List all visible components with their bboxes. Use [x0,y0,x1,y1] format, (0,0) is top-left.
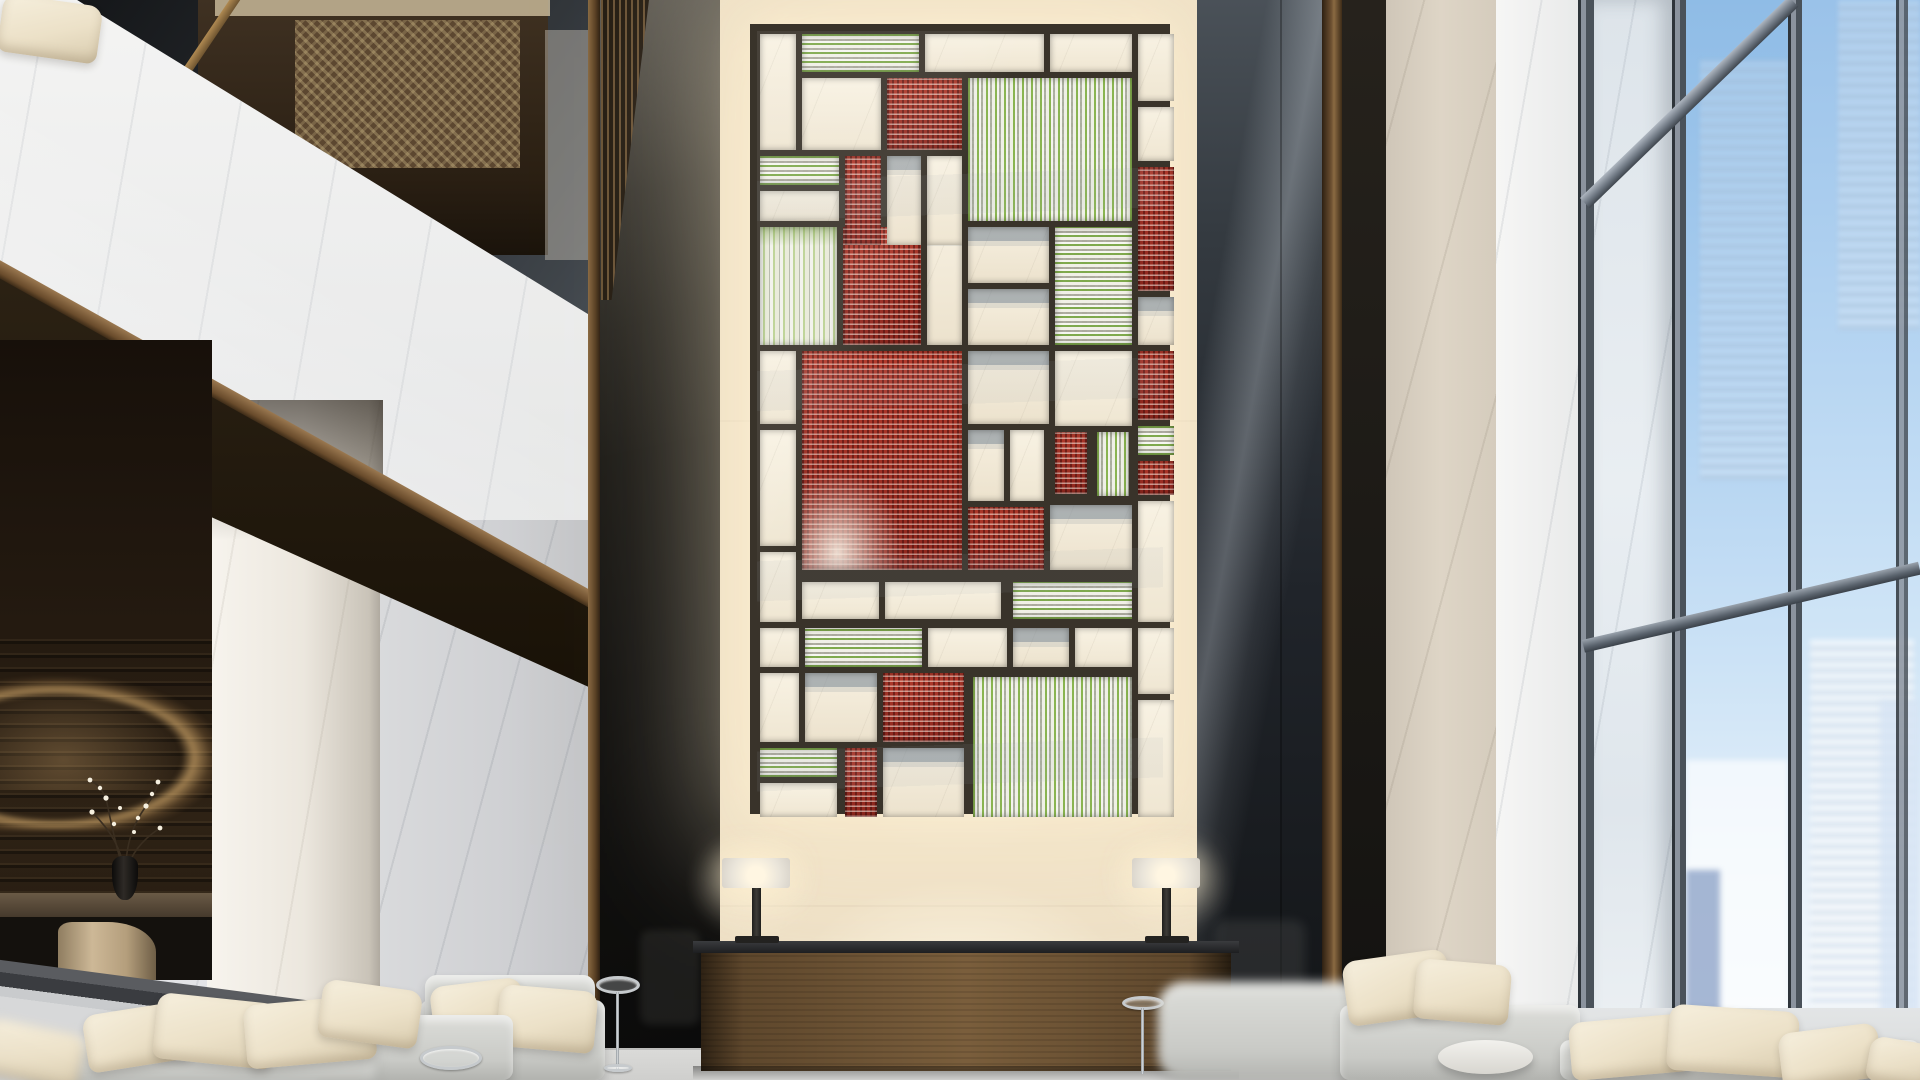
window-mullion [1578,0,1594,1080]
panel-cell-w [1075,628,1132,667]
pillow [1413,958,1513,1026]
panel-cell-w [1138,628,1174,694]
panel-cell-gh [760,156,839,185]
side-table-base [604,1064,632,1072]
lobby-scene [0,0,1920,1080]
panel-cell-r [1055,432,1087,494]
panel-cell-r [887,78,962,150]
panel-cell-w [1138,501,1174,622]
lamp-shade [1132,858,1200,888]
window-mullion [1788,0,1802,1080]
panel-cell-rd [802,351,962,570]
panel-cell-w [802,78,881,150]
panel-cell-gv [973,677,1132,817]
lamp-stem [1162,888,1171,943]
lamp-base [1145,936,1189,943]
panel-cell-w [760,783,837,817]
panel-cell-w [760,191,839,221]
panel-cell-w [760,34,796,150]
pillow [1865,1035,1920,1080]
panel-cell-r [845,156,881,245]
panel-cell-r [1138,351,1174,420]
round-coffee-table [1438,1040,1533,1074]
panel-cell-r [1138,461,1174,495]
panel-cell-r [968,507,1044,570]
panel-cell-gh [805,628,922,667]
side-table-stem [616,992,619,1070]
panel-cell-r [883,673,964,742]
panel-cell-w [760,552,796,622]
mezzanine-pattern-screen [295,20,520,168]
pillar-reflection [640,930,700,1025]
panel-cell-wg [887,156,921,245]
panel-cell-wg [968,227,1049,283]
panel-cell-gc [760,227,837,345]
cove-light-halo [0,590,212,790]
tall-side-table-stem [1141,1008,1144,1074]
panel-cell-w [1138,34,1174,101]
panel-cell-w [1138,700,1174,817]
panel-cell-w [760,628,799,667]
wood-edge-strip [588,0,600,1080]
round-side-table [420,1046,482,1070]
panel-cell-r [845,748,877,817]
panel-cell-gv [968,78,1132,221]
lamp-shade [722,858,790,888]
lamp-base [735,936,779,943]
reception-alcove [0,340,212,980]
mezzanine-ceiling [215,0,550,16]
panel-cell-wg [968,351,1049,424]
glass-joint [1280,0,1282,1080]
desk-shadow [693,1066,1239,1080]
window-mullion [1896,0,1908,1080]
panel-cell-w [925,34,1044,72]
panel-cell-w [760,430,796,546]
wood-slats [601,0,649,300]
wood-edge-strip [1322,0,1342,1080]
vase [112,856,138,900]
window-mullion [1672,0,1686,1080]
mosaic-panel [750,24,1170,814]
panel-cell-w [1050,34,1132,72]
panel-cell-w [885,582,1001,619]
panel-cell-wg [1138,297,1174,345]
panel-cell-w [1055,351,1132,426]
reception-desk-front [701,953,1231,1071]
panel-cell-w [1138,107,1174,161]
panel-cell-w [1010,430,1044,501]
panel-cell-gh [1013,582,1132,619]
panel-cell-wg [968,430,1004,501]
panel-cell-w [928,628,1007,667]
panel-cell-wg [1013,628,1069,667]
panel-cell-w [760,351,796,424]
panel-cell-gh [1055,227,1132,345]
panel-cell-wg [968,289,1049,345]
panel-cell-r [1138,167,1174,291]
curtain-wall-window [1578,0,1920,1080]
beige-marble-strip [1386,0,1496,1080]
lamp-stem [752,888,761,943]
panel-cell-w [760,673,799,742]
panel-cell-wg [883,748,964,817]
panel-cell-w [927,156,962,245]
panel-cell-wg [805,673,877,742]
panel-cell-w [802,582,879,619]
panel-cell-gv [1097,432,1129,496]
alcove-counter-top [0,893,212,917]
shadow-recess [1342,0,1386,1080]
window-pane [1686,0,1788,1080]
panel-cell-wg [1050,505,1132,570]
panel-cell-gh [760,748,837,777]
panel-cell-gh [1138,426,1174,455]
distant-building [1700,60,1788,480]
white-marble-strip [1496,0,1578,1080]
panel-cell-gh [802,34,919,72]
